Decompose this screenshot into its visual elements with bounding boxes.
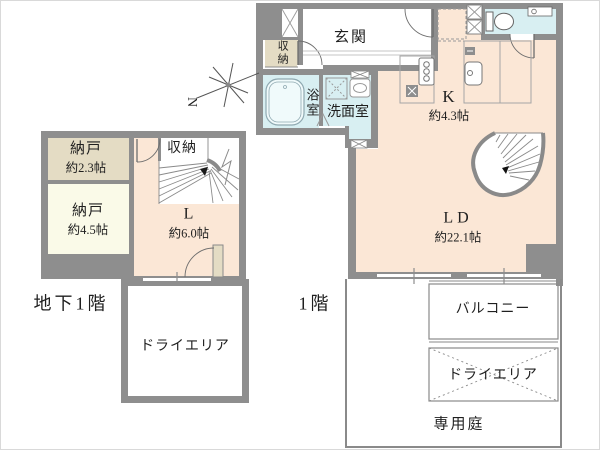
wall [431,3,438,67]
room-name: L [169,204,210,225]
room-name: 納戸 [66,140,107,160]
room-label-f1-genkan: 玄関 [334,28,368,48]
room-label-f1-living-dining: LD 約22.1帖 [435,208,482,245]
room-f1-washroom-nook [349,126,371,139]
room-label-b1f-closet: 収納 [167,140,197,158]
wall [371,69,378,140]
wall [481,3,485,40]
room-label-f1-washroom: 洗面室 [327,104,369,122]
wall [129,135,134,256]
room-label-f1-balcony: バルコニー [456,301,531,319]
room-label-f1-kitchen: K 約4.3帖 [429,86,470,124]
room-size: 約22.1帖 [435,229,482,245]
room-f1-toilet-floor [483,9,556,34]
wall [483,34,510,40]
wall [41,254,134,279]
wall [319,75,323,126]
room-size: 約4.5帖 [68,222,109,238]
window [143,277,211,282]
wall [239,131,246,283]
room-f1-kitchen-floor [483,40,556,71]
wall [41,131,246,138]
wall [44,180,129,184]
wall [41,131,48,261]
room-f1-pipe-shaft [282,9,298,37]
wall [526,244,563,272]
room-size: 約6.0帖 [169,225,210,241]
wall [345,126,349,139]
room-label-f1-dryarea: ドライエリア [448,367,538,385]
wall [158,138,161,161]
window [467,273,541,278]
wall [345,139,378,148]
room-label-b1f-living: L 約6.0帖 [169,204,210,241]
room-label-b1f-dryarea: ドライエリア [140,338,230,356]
room-label-b1f-nando-small: 納戸 約2.3帖 [66,140,107,176]
compass-north-letter: N [184,97,199,107]
room-f1-kitchen-floor [438,9,483,71]
room-size: 約2.3帖 [66,160,107,176]
floor-label-b1f: 地下1階 [34,292,109,315]
room-label-b1f-nando-large: 納戸 約4.5帖 [68,202,109,238]
wall [348,148,356,272]
room-label-f1-closet: 収納 [275,40,289,66]
room-label-f1-garden: 専用庭 [433,415,484,435]
room-label-f1-bath: 浴室 [303,88,320,118]
wall [256,3,263,132]
room-name: 納戸 [68,202,109,222]
wall [534,34,556,40]
room-name: LD [435,208,482,229]
window [377,273,451,278]
north-compass-icon: N [184,63,259,107]
floor-label-f1: 1階 [299,292,332,315]
wall [256,69,371,75]
floorplan-image: N [0,0,600,450]
wall [256,128,349,135]
wall [263,3,282,39]
room-name: K [429,86,470,108]
room-size: 約4.3帖 [429,108,470,124]
